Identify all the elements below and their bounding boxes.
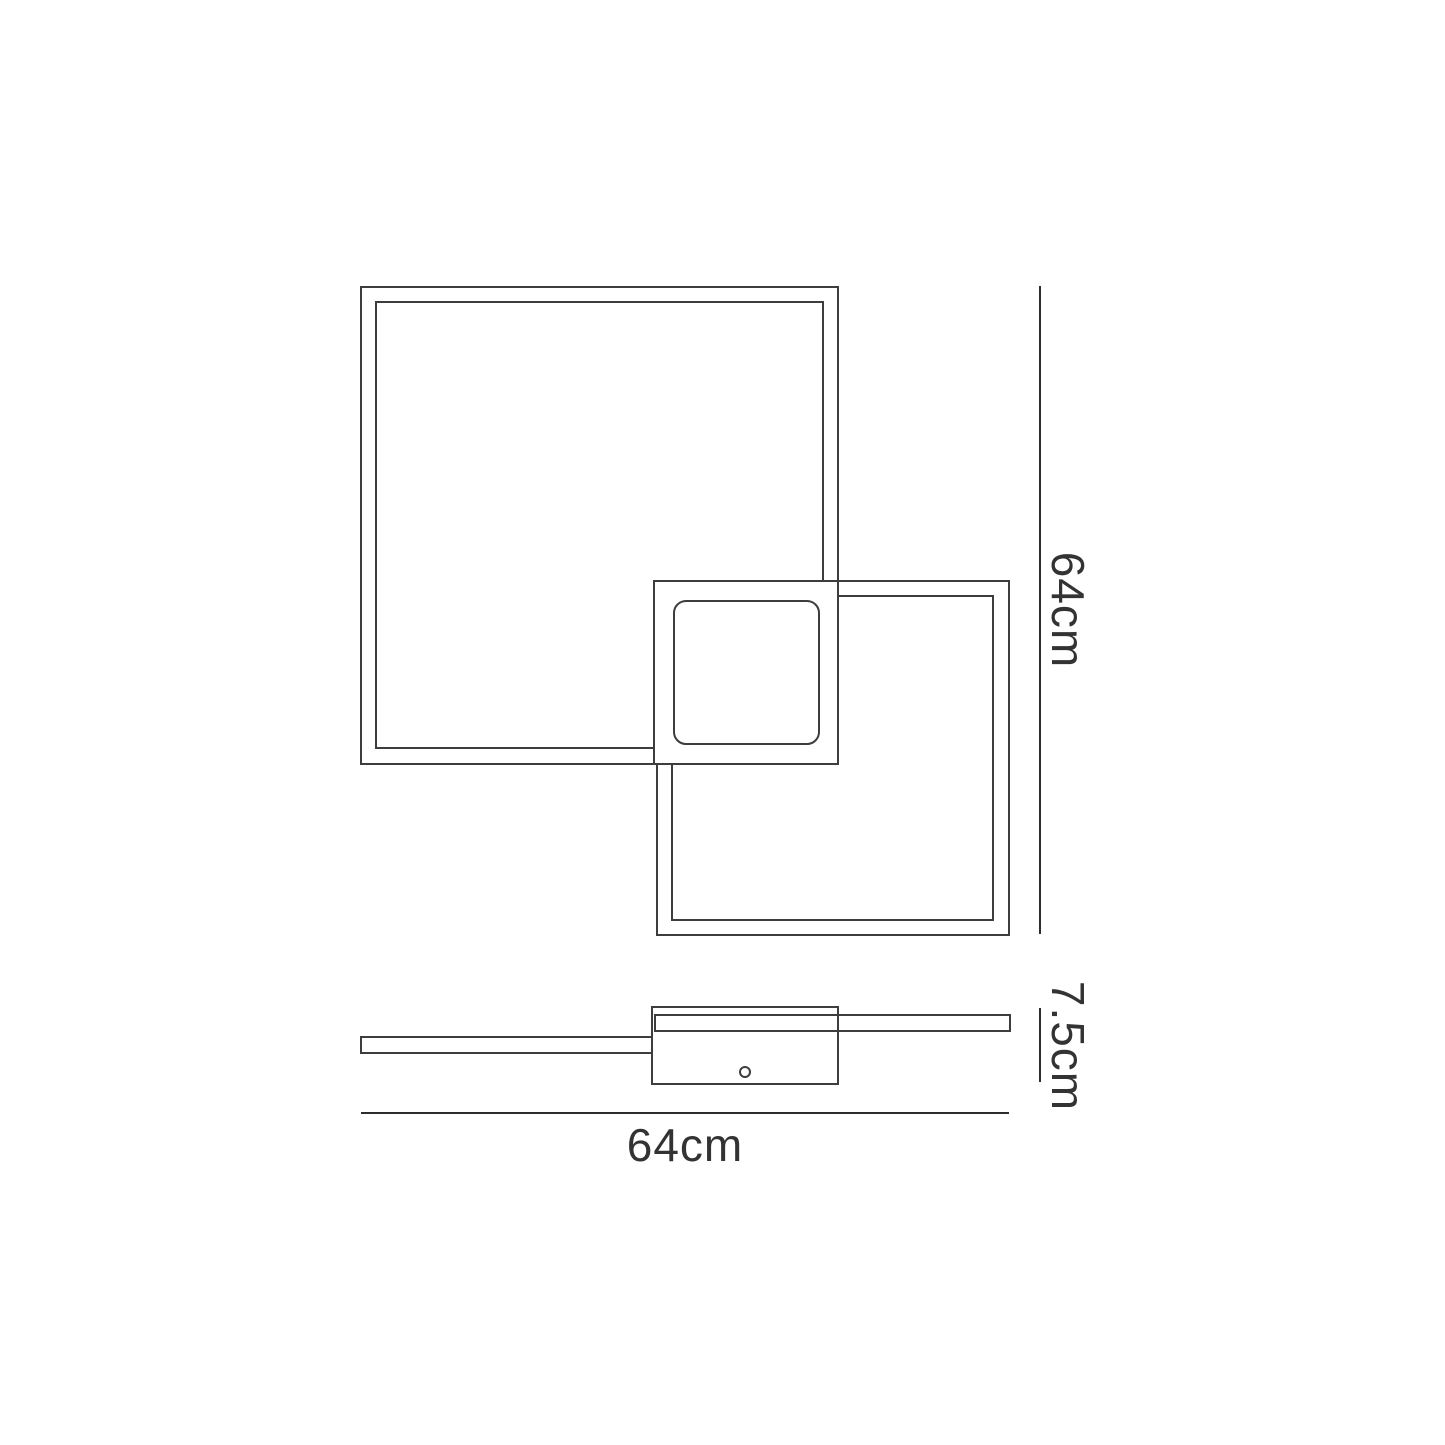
depth-dimension-label: 7.5cm: [1042, 981, 1094, 1111]
center-square-outer: [654, 581, 838, 764]
side-view-mounting-box: [652, 1007, 838, 1084]
ceiling-light-dimension-diagram: 64cm 7.5cm 64cm: [0, 0, 1445, 1445]
plan-view: [361, 287, 1009, 935]
width-dimension-label: 64cm: [627, 1119, 743, 1171]
height-dimension-label: 64cm: [1042, 552, 1094, 668]
side-view: [361, 1007, 1010, 1084]
side-view-left-bar: [361, 1037, 653, 1053]
dimension-drawing-page: 64cm 7.5cm 64cm: [0, 0, 1445, 1445]
